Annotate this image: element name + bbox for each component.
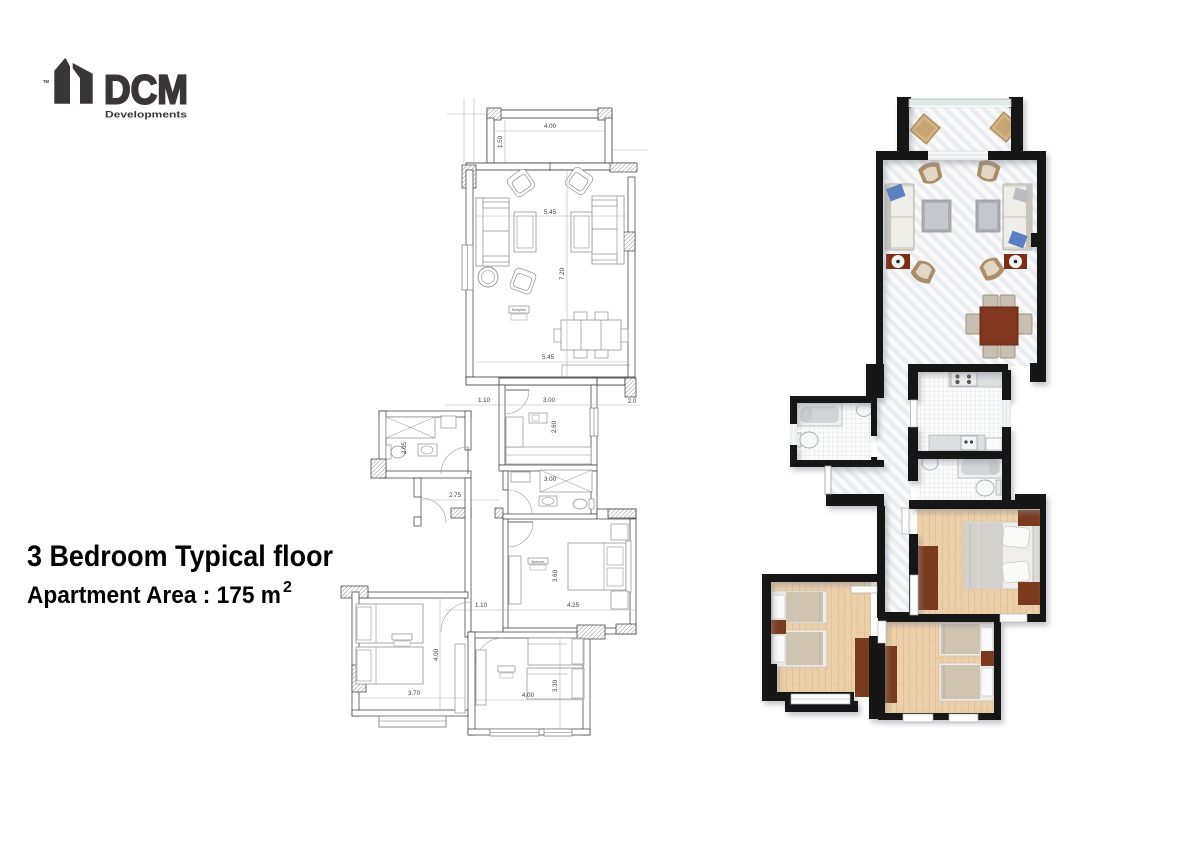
svg-text:2.05: 2.05 [401,441,408,454]
svg-text:1.10: 1.10 [478,397,491,404]
svg-text:2.0: 2.0 [628,398,637,405]
svg-text:5.45: 5.45 [542,354,555,361]
svg-text:3.30: 3.30 [552,679,559,692]
svg-text:3.00: 3.00 [544,476,557,483]
svg-text:2: 2 [283,579,292,596]
svg-text:3.00: 3.00 [543,397,556,404]
svg-text:2.75: 2.75 [449,492,462,499]
svg-text:Bedroom: Bedroom [532,560,545,564]
svg-text:3 Bedroom Typical floor: 3 Bedroom Typical floor [27,540,333,573]
svg-text:1.10: 1.10 [475,602,488,609]
svg-text:7.20: 7.20 [559,267,566,280]
svg-text:2.60: 2.60 [551,420,558,433]
svg-text:4.25: 4.25 [567,602,580,609]
svg-text:Developments: Developments [105,110,187,120]
svg-text:4.00: 4.00 [544,123,557,130]
svg-text:4.00: 4.00 [433,648,440,661]
svg-text:TM: TM [43,79,50,84]
svg-text:Apartment Area : 175 m: Apartment Area : 175 m [27,582,281,609]
svg-text:DCM: DCM [104,67,188,113]
svg-text:1.50: 1.50 [497,135,504,148]
svg-text:3.70: 3.70 [408,690,421,697]
svg-text:4.00: 4.00 [522,692,535,699]
svg-text:3.60: 3.60 [552,569,559,582]
svg-text:5.45: 5.45 [544,209,557,216]
svg-text:Reception: Reception [512,308,527,312]
